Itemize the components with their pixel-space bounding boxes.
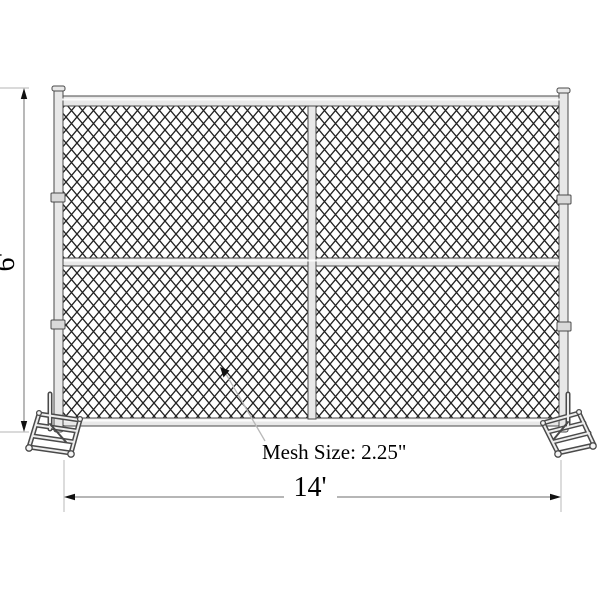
width-arrow-right [550,494,561,500]
right-post-clamp-lower [557,322,571,331]
middle-post [308,106,316,419]
width-label: 14' [293,472,326,503]
height-label: 6' [0,252,21,271]
width-arrow-left [64,494,75,500]
height-arrow-down [21,421,27,432]
mesh-size-label: Mesh Size: 2.25" [262,440,406,464]
left-post-cap [52,86,65,91]
height-arrow-up [21,88,27,99]
top-rail [58,96,564,106]
left-post-clamp-lower [51,320,65,329]
height-dimension: 6' [0,88,29,432]
right-post-cap [557,88,570,93]
left-post-clamp-upper [51,193,65,202]
right-post [559,91,568,432]
right-post-clamp-upper [557,195,571,204]
fence-diagram-canvas: 6' 14' Mesh Size: 2.25" [0,0,600,600]
width-dimension: 14' [64,460,561,512]
left-post [54,89,63,432]
fence-illustration: 6' 14' Mesh Size: 2.25" [0,0,600,600]
